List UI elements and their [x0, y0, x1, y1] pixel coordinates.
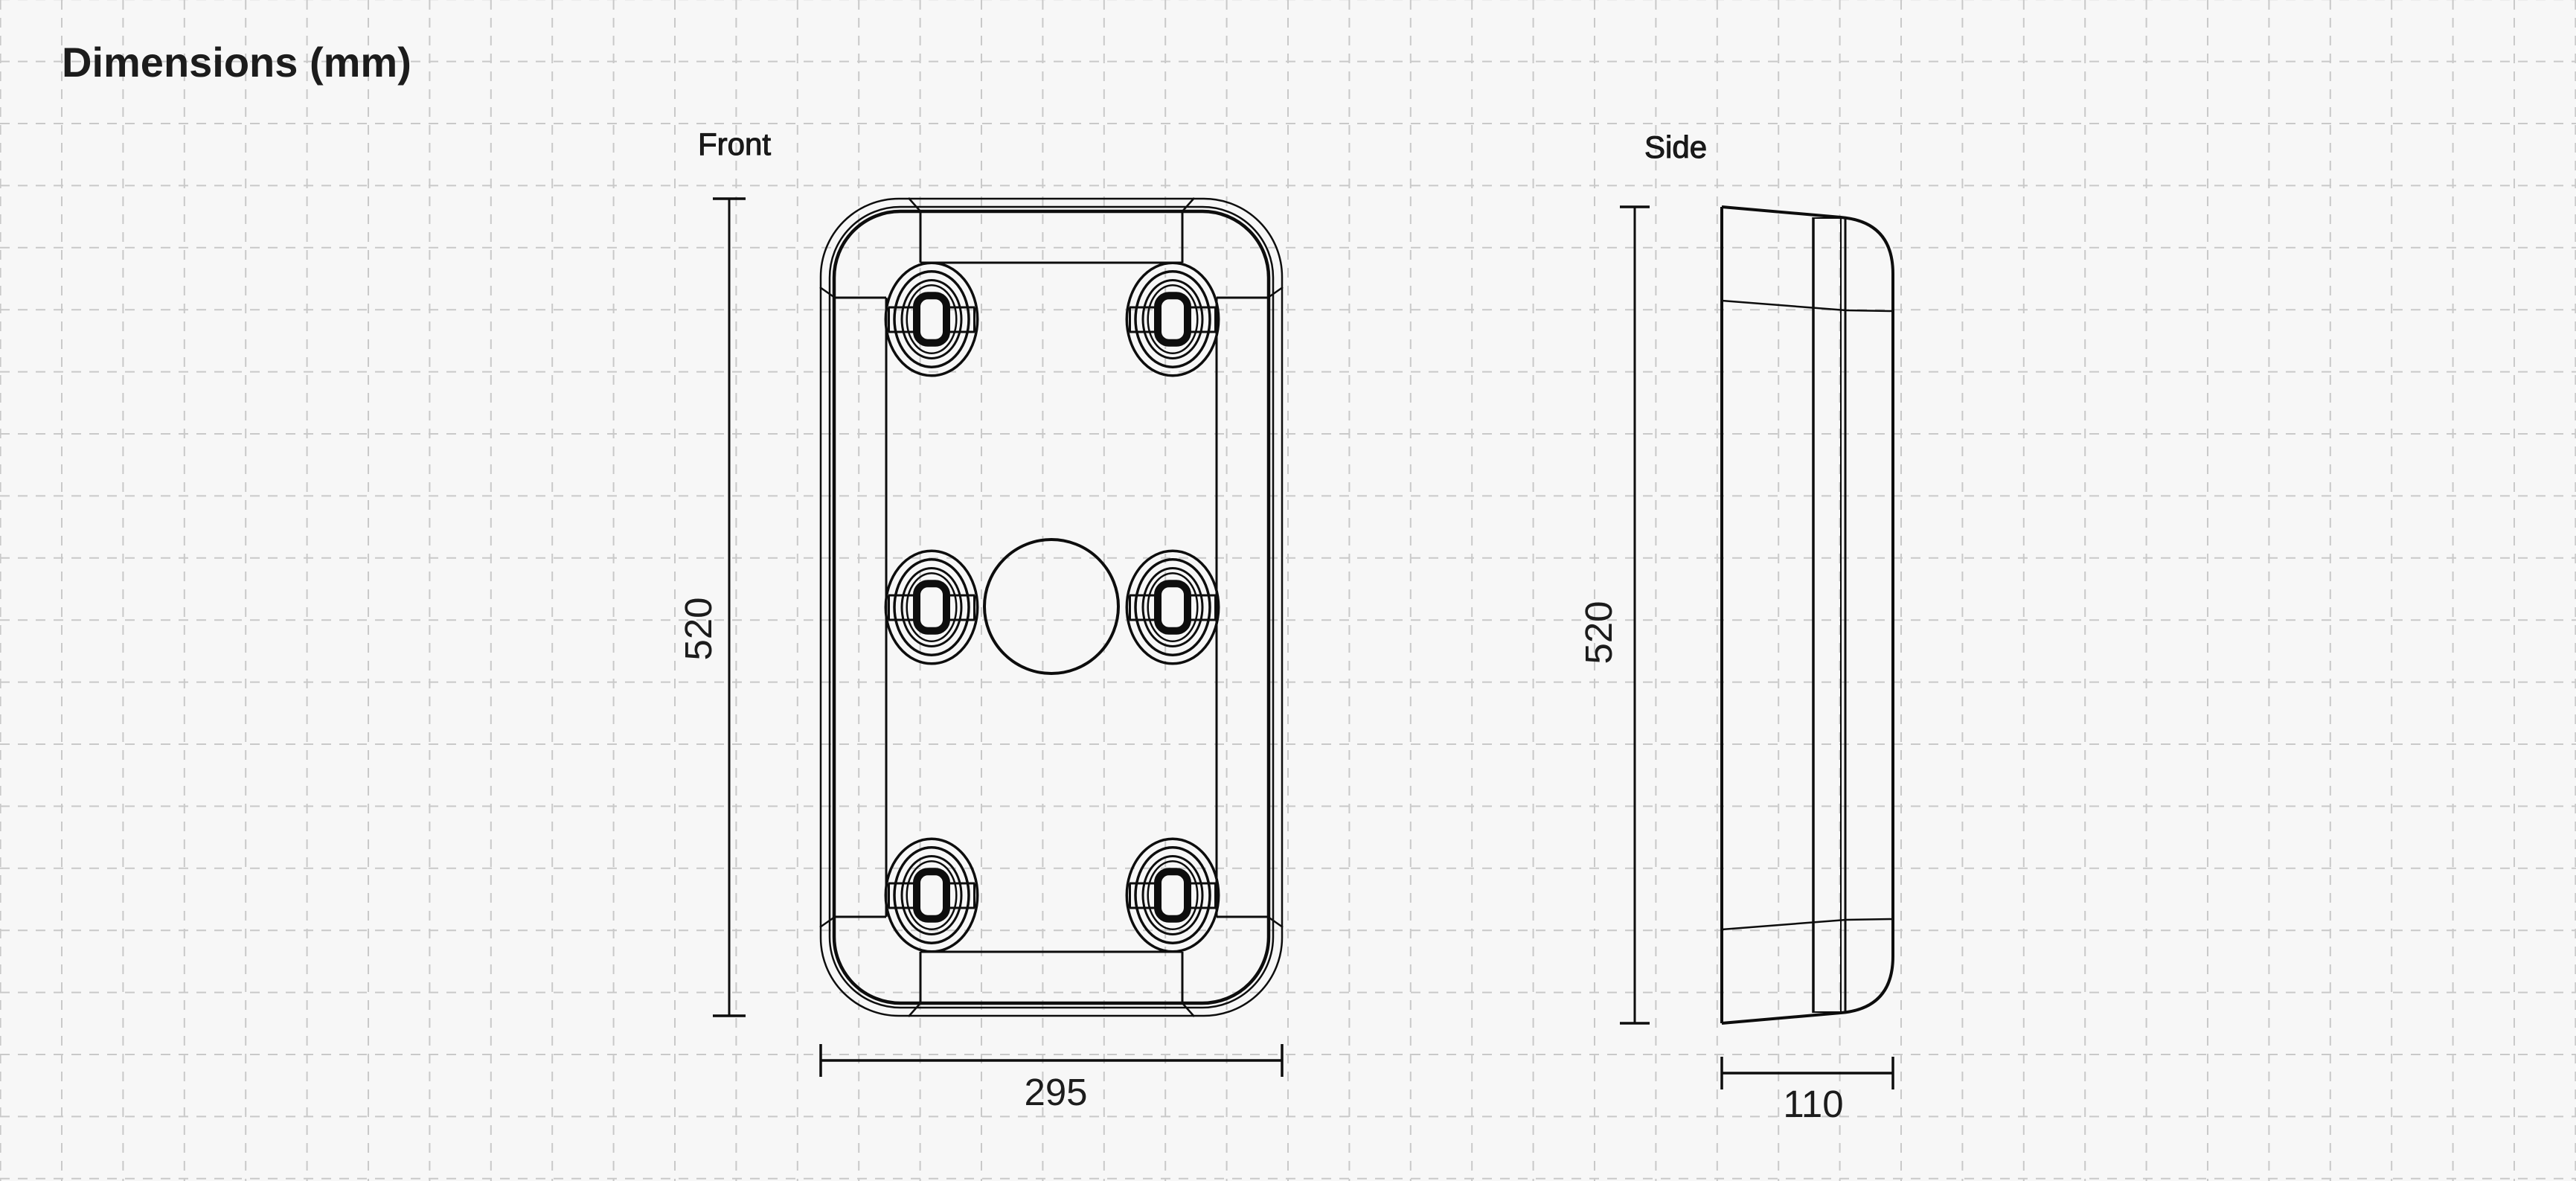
- dimensions-drawing-svg: Dimensions (mm) Front: [0, 0, 2576, 1181]
- front-width-value: 295: [1024, 1071, 1087, 1113]
- page-title: Dimensions (mm): [62, 39, 411, 86]
- front-height-value: 520: [677, 597, 720, 660]
- side-view-label: Side: [1644, 129, 1707, 164]
- front-view-label: Front: [698, 127, 771, 161]
- side-depth-value: 110: [1783, 1083, 1843, 1125]
- side-height-value: 520: [1577, 601, 1620, 664]
- dimensions-diagram: Dimensions (mm) Front: [0, 0, 2576, 1181]
